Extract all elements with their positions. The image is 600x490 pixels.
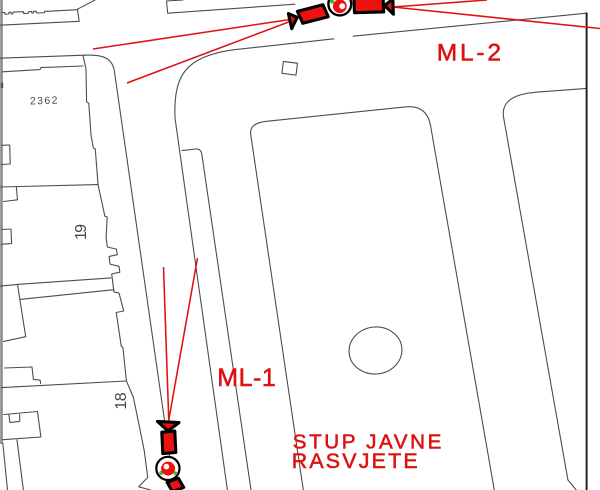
- svg-text:18: 18: [113, 392, 130, 409]
- svg-text:ML-2: ML-2: [437, 39, 504, 66]
- svg-text:2362: 2362: [30, 94, 59, 107]
- svg-text:ML-1: ML-1: [217, 364, 276, 392]
- svg-text:RASVJETE: RASVJETE: [292, 449, 420, 473]
- svg-text:19: 19: [73, 224, 90, 240]
